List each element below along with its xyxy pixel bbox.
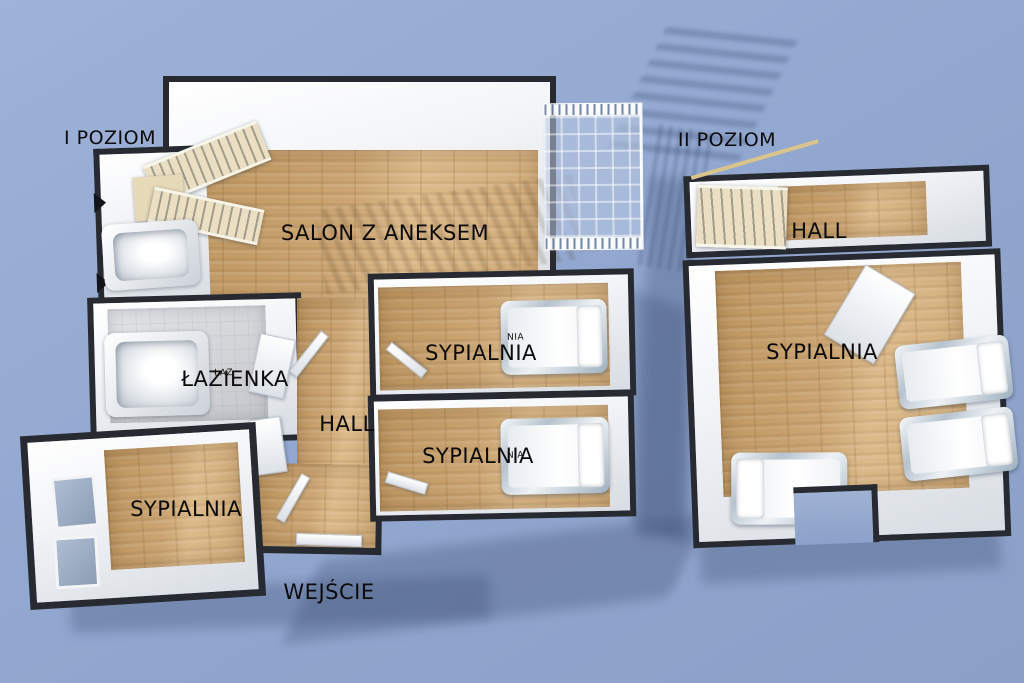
balcony-floor: [543, 116, 643, 238]
hall-label-level1: HALL: [319, 412, 375, 436]
room-bedroom-level2: [682, 248, 1011, 548]
level1-title: I POZIOM: [64, 127, 156, 149]
hall-label-level2: HALL: [791, 219, 847, 243]
floor-plan-scene: ŁAZ NIA NIA: [0, 0, 1024, 683]
footprint-notch: [793, 484, 879, 545]
room-hall-level2: [683, 165, 992, 259]
window: [51, 474, 100, 530]
pillow: [980, 412, 1013, 467]
level2-title: II POZIOM: [678, 129, 776, 151]
bedroom-bottom-left-label: SYPIALNIA: [130, 497, 242, 521]
staircase-level2: [696, 185, 788, 250]
pillow: [576, 305, 603, 368]
salon-label: SALON Z ANEKSEM: [281, 221, 489, 245]
entrance-label: WEJŚCIE: [283, 580, 374, 604]
bedroom-top-label: SYPIALNIA: [425, 341, 537, 365]
pillow: [577, 423, 604, 488]
window-notch: [94, 193, 107, 213]
balcony: [543, 103, 643, 251]
pillow: [736, 459, 764, 519]
window: [53, 535, 100, 590]
balcony-railing-top: [543, 103, 642, 117]
balcony-railing-bottom: [545, 237, 644, 251]
bedroom-middle-label: SYPIALNIA: [422, 444, 534, 468]
bathtub-under-stairs: [101, 219, 201, 292]
pillow: [976, 341, 1009, 396]
entrance-door-panel: [296, 533, 362, 547]
bathroom-label: ŁAZIENKA: [181, 367, 289, 391]
bed: [899, 406, 1019, 482]
room-bedroom-top: NIA: [368, 268, 637, 401]
bed: [894, 334, 1014, 410]
bedroom-level2-label: SYPIALNIA: [766, 340, 878, 364]
